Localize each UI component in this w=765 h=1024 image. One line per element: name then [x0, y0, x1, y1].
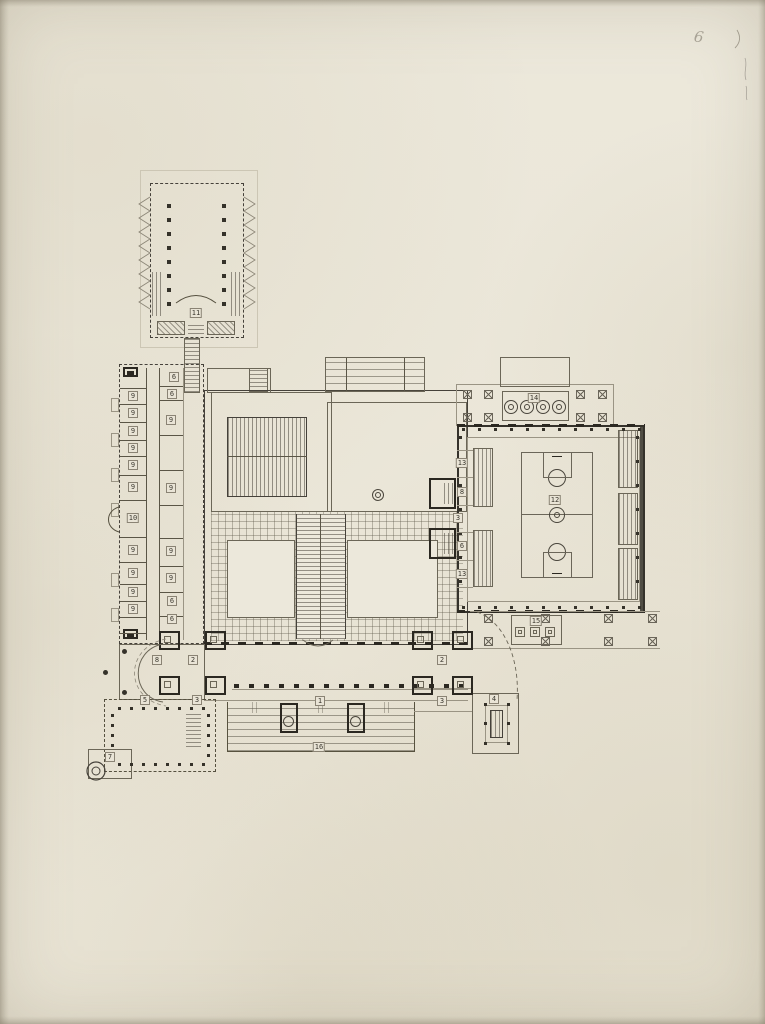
chapel-zigzag-left: [139, 197, 150, 309]
room-number-label: 8: [457, 487, 467, 497]
pencil-squiggle: [735, 30, 740, 48]
room-number-label: 1: [315, 696, 325, 706]
floor-plan: 6 11669999999910999999668253711623413836…: [0, 0, 765, 1024]
room-number-label: 3: [192, 695, 202, 705]
room-number-label: 15: [530, 616, 542, 626]
room-number-label: 9: [128, 426, 138, 436]
room-number-label: 9: [128, 587, 138, 597]
chapel-zigzag-right: [244, 197, 255, 309]
room-number-label: 9: [128, 568, 138, 578]
pencil-annotation: 6: [693, 27, 705, 46]
scanned-floor-plan-sheet: 6 11669999999910999999668253711623413836…: [0, 0, 765, 1024]
room-number-label: 2: [437, 655, 447, 665]
room-number-label: 12: [549, 495, 561, 505]
room-number-label: 11: [190, 308, 202, 318]
room-number-label: 7: [105, 752, 115, 762]
corner-tower-outer: [87, 762, 105, 780]
room-number-label: 4: [489, 694, 499, 704]
corner-tower-inner: [92, 767, 100, 775]
room-number-label: 5: [140, 695, 150, 705]
entrance-canopy-curve: [303, 640, 333, 646]
room-number-label: 14: [528, 393, 540, 403]
room-number-label: 6: [457, 541, 467, 551]
room-number-label: 6: [167, 614, 177, 624]
room-number-label: 13: [456, 569, 468, 579]
room-number-label: 9: [128, 443, 138, 453]
chapel-apse-curve: [176, 296, 216, 304]
room-number-label: 16: [313, 742, 325, 752]
margin-scribble: [745, 58, 747, 100]
room-number-label: 9: [128, 482, 138, 492]
room-number-label: 6: [169, 372, 179, 382]
room-number-label: 9: [166, 415, 176, 425]
garden-arc-path: [477, 612, 517, 700]
room-number-label: 9: [128, 545, 138, 555]
room-number-label: 13: [456, 458, 468, 468]
room-number-label: 8: [152, 655, 162, 665]
room-number-label: 2: [188, 655, 198, 665]
curved-linework-layer: [0, 0, 765, 1024]
room-number-label: 9: [128, 604, 138, 614]
room-number-label: 6: [167, 596, 177, 606]
room-number-label: 3: [437, 696, 447, 706]
room-number-label: 9: [128, 408, 138, 418]
room-number-label: 9: [166, 546, 176, 556]
room-number-label: 9: [128, 391, 138, 401]
room10-bay-window: [109, 507, 120, 532]
room-number-label: 9: [128, 460, 138, 470]
room-number-label: 6: [167, 389, 177, 399]
room-number-label: 3: [453, 513, 463, 523]
room-number-label: 9: [166, 573, 176, 583]
room-number-label: 10: [127, 513, 139, 523]
room-number-label: 9: [166, 483, 176, 493]
